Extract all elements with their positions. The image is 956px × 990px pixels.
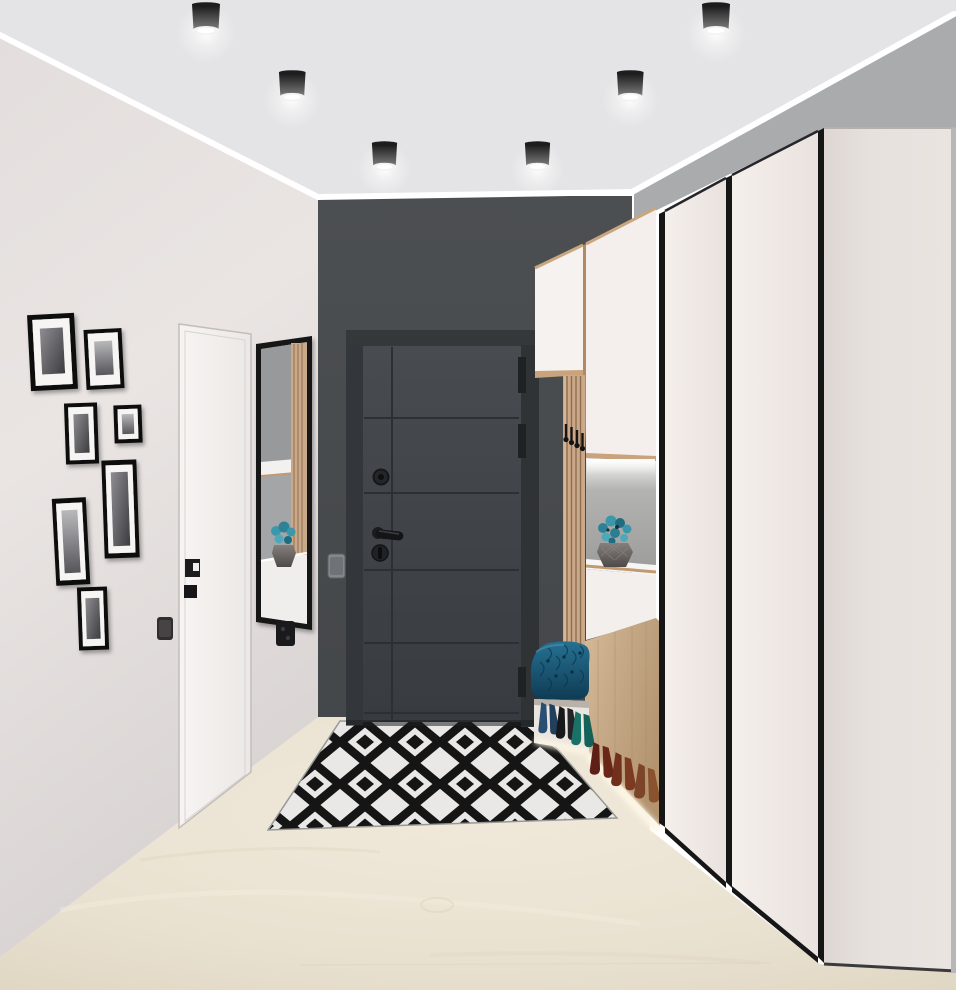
wardrobe-trim: [659, 211, 665, 827]
mirror-reflection: [261, 342, 307, 624]
wardrobe-door[interactable]: [665, 178, 726, 882]
scene-canvas: [0, 0, 956, 990]
back-wall-switch[interactable]: [328, 554, 345, 578]
wall-socket: [276, 621, 295, 646]
hallway-scene: [0, 0, 956, 990]
wardrobe-door[interactable]: [732, 131, 818, 957]
upper-cabinet[interactable]: [535, 245, 583, 378]
wardrobe-trim: [726, 175, 732, 888]
wall-corner-strip: [951, 128, 956, 973]
photo-frame: [101, 459, 139, 558]
bench-cushion: [531, 641, 590, 699]
photo-frame: [52, 497, 91, 586]
interior-door[interactable]: [179, 324, 251, 828]
photo-frame: [83, 328, 124, 390]
photo-frame: [64, 402, 99, 464]
wardrobe-side-panel: [824, 128, 956, 971]
coat-rack-slats: [563, 375, 585, 652]
photo-frame: [77, 586, 109, 650]
upper-cabinet[interactable]: [583, 208, 656, 461]
wardrobe: [659, 128, 956, 973]
peephole-icon: [374, 470, 389, 485]
left-wall-switch[interactable]: [157, 617, 173, 640]
entry-door[interactable]: [346, 330, 539, 727]
door-threshold-shadow: [346, 720, 539, 726]
wardrobe-trim: [818, 128, 824, 963]
photo-frame: [27, 313, 78, 391]
entry-door-lock[interactable]: [372, 545, 388, 561]
mirror: [256, 336, 312, 630]
photo-frame: [113, 405, 142, 444]
